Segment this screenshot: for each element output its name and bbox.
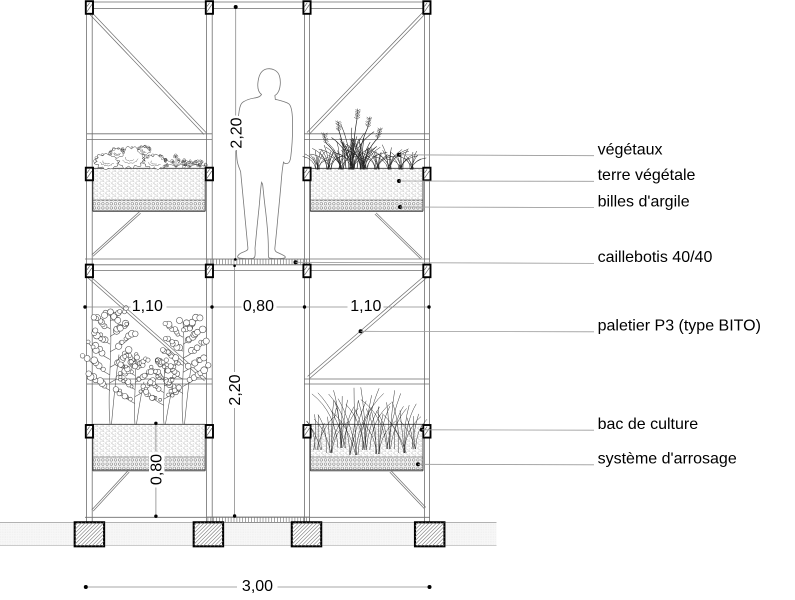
svg-text:1,10: 1,10: [132, 298, 163, 315]
svg-text:caillebotis 40/40: caillebotis 40/40: [598, 249, 713, 266]
svg-text:2,20: 2,20: [228, 117, 245, 148]
svg-text:terre végétale: terre végétale: [598, 167, 696, 184]
svg-text:système d'arrosage: système d'arrosage: [598, 451, 737, 468]
svg-text:billes d'argile: billes d'argile: [598, 193, 690, 210]
svg-text:0,80: 0,80: [243, 298, 274, 315]
svg-text:végétaux: végétaux: [598, 142, 663, 159]
svg-text:bac de culture: bac de culture: [598, 416, 699, 433]
svg-text:0,80: 0,80: [149, 454, 166, 485]
svg-text:2,20: 2,20: [227, 374, 244, 405]
svg-text:paletier P3 (type BITO): paletier P3 (type BITO): [598, 318, 761, 335]
svg-text:1,10: 1,10: [350, 298, 381, 315]
svg-text:3,00: 3,00: [242, 578, 273, 595]
